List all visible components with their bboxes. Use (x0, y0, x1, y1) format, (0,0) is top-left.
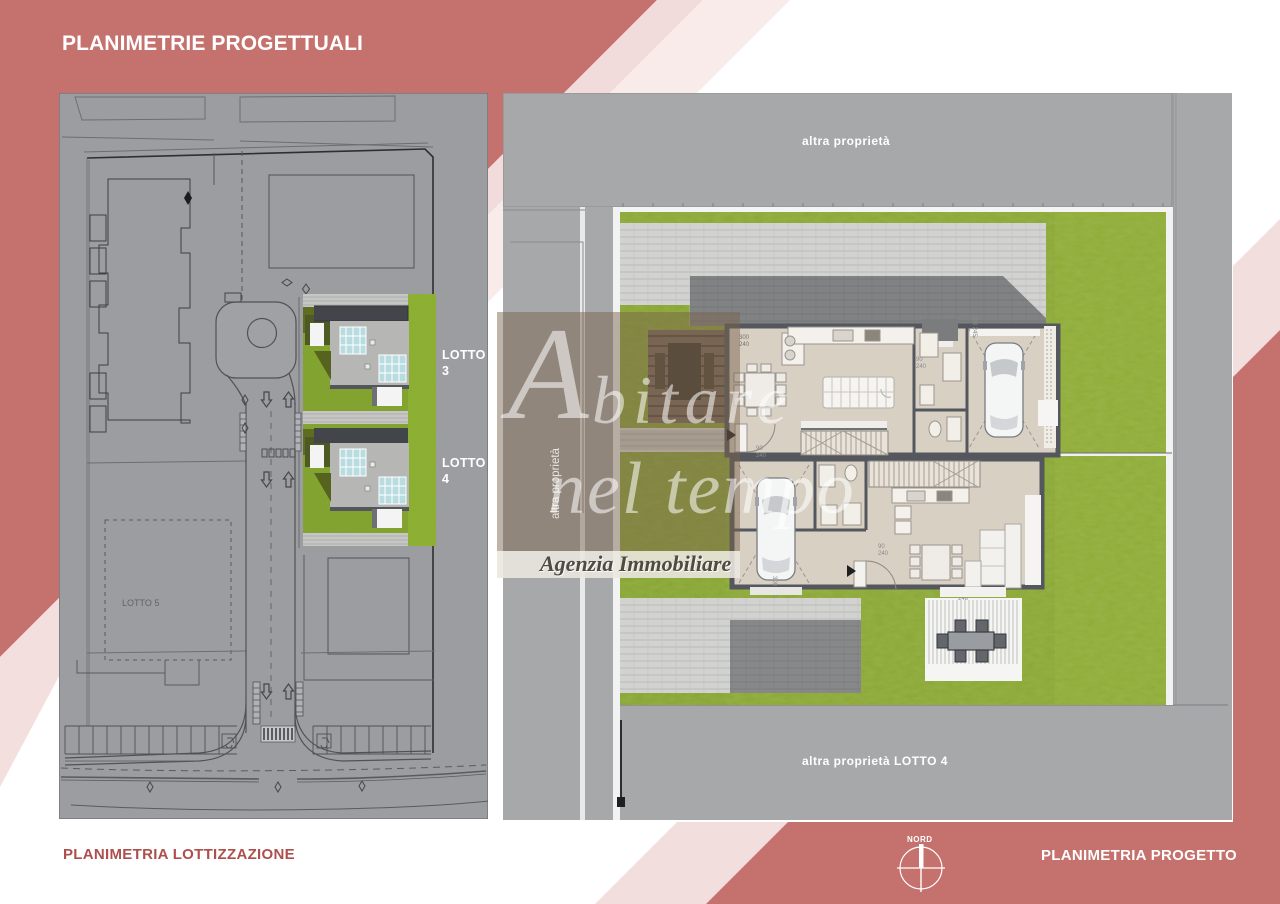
svg-text:90: 90 (878, 544, 885, 550)
svg-text:4: 4 (442, 472, 449, 486)
svg-text:NORD: NORD (907, 835, 933, 844)
svg-text:240: 240 (878, 551, 889, 557)
svg-text:altra proprietà: altra proprietà (802, 134, 890, 148)
svg-text:90: 90 (916, 357, 923, 363)
svg-text:altra proprietà LOTTO 4: altra proprietà LOTTO 4 (802, 754, 948, 768)
svg-text:240: 240 (916, 364, 927, 370)
svg-text:LOTTO: LOTTO (442, 456, 486, 470)
svg-text:LOTTO 5: LOTTO 5 (122, 598, 159, 608)
svg-text:203 245: 203 245 (971, 315, 977, 337)
svg-text:3: 3 (442, 364, 449, 378)
svg-text:300: 300 (739, 335, 750, 341)
svg-text:240: 240 (739, 342, 750, 348)
svg-text:LOTTO: LOTTO (442, 348, 486, 362)
